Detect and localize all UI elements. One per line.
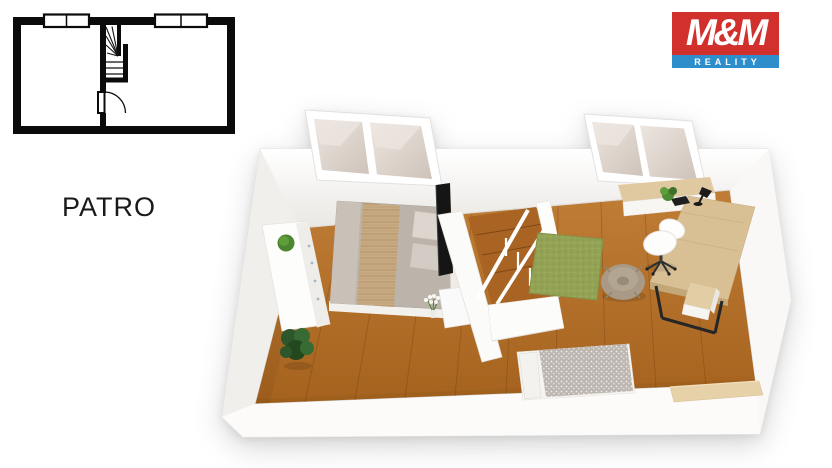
- floor-label: PATRO: [62, 192, 156, 223]
- floorplan-3d: [210, 100, 810, 460]
- window-symbol-left: [44, 15, 89, 28]
- logo-mm: M&M: [672, 12, 779, 55]
- window-symbol-right: [155, 15, 207, 28]
- area-rug: [529, 233, 603, 300]
- single-bed: [517, 344, 635, 400]
- skylight-window-left: [305, 110, 442, 186]
- plan-2d: [8, 12, 240, 144]
- pouf: [601, 264, 646, 302]
- brand-logo: M&M REALITY: [672, 12, 779, 68]
- logo-reality: REALITY: [672, 55, 779, 68]
- bed-runner: [357, 203, 400, 307]
- dresser-plant: [278, 235, 295, 252]
- skylight-window-right: [584, 114, 706, 187]
- stage: PATRO M&M REALITY: [0, 0, 832, 468]
